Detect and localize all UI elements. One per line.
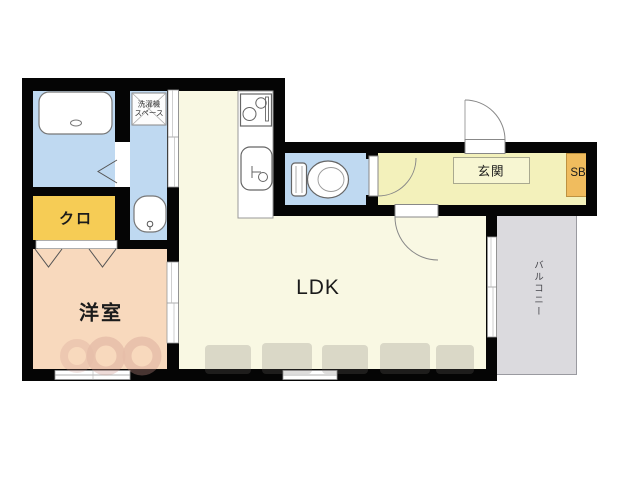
wall-closet-stub — [22, 240, 38, 249]
western-room-label: 洋室 — [79, 297, 123, 326]
wall-corridor-right — [586, 142, 597, 216]
wall-corridor-bottom — [273, 205, 597, 216]
entrance-label: 玄関 — [477, 161, 504, 180]
wall-corridor-top — [285, 142, 597, 153]
room-ldk-kitchen — [179, 91, 273, 216]
wall-kitchen-right — [273, 78, 285, 216]
wall-toilet-door-stub-bottom — [366, 195, 378, 216]
wall-toilet-door-stub-top — [366, 142, 378, 159]
room-bathroom — [33, 91, 115, 188]
balcony-label: バルコニー — [530, 260, 544, 318]
ldk-label: LDK — [296, 276, 340, 300]
wall-left — [22, 78, 33, 381]
wall-bath-closet — [33, 187, 130, 196]
washer-space-label: 洗濯機 スペース — [134, 100, 163, 119]
wall-bottom — [22, 369, 497, 381]
room-toilet — [285, 153, 369, 205]
wall-ldk-right — [486, 205, 497, 381]
floorplan: 洗濯機 スペース クロ 洋室 LDK 玄関 SB バルコニー — [0, 0, 640, 480]
wall-center-vertical — [167, 78, 179, 369]
wall-top — [22, 78, 285, 91]
closet-label: クロ — [59, 208, 93, 229]
wall-bath-divider-top — [115, 78, 130, 142]
shoe-box-label: SB — [570, 167, 585, 179]
